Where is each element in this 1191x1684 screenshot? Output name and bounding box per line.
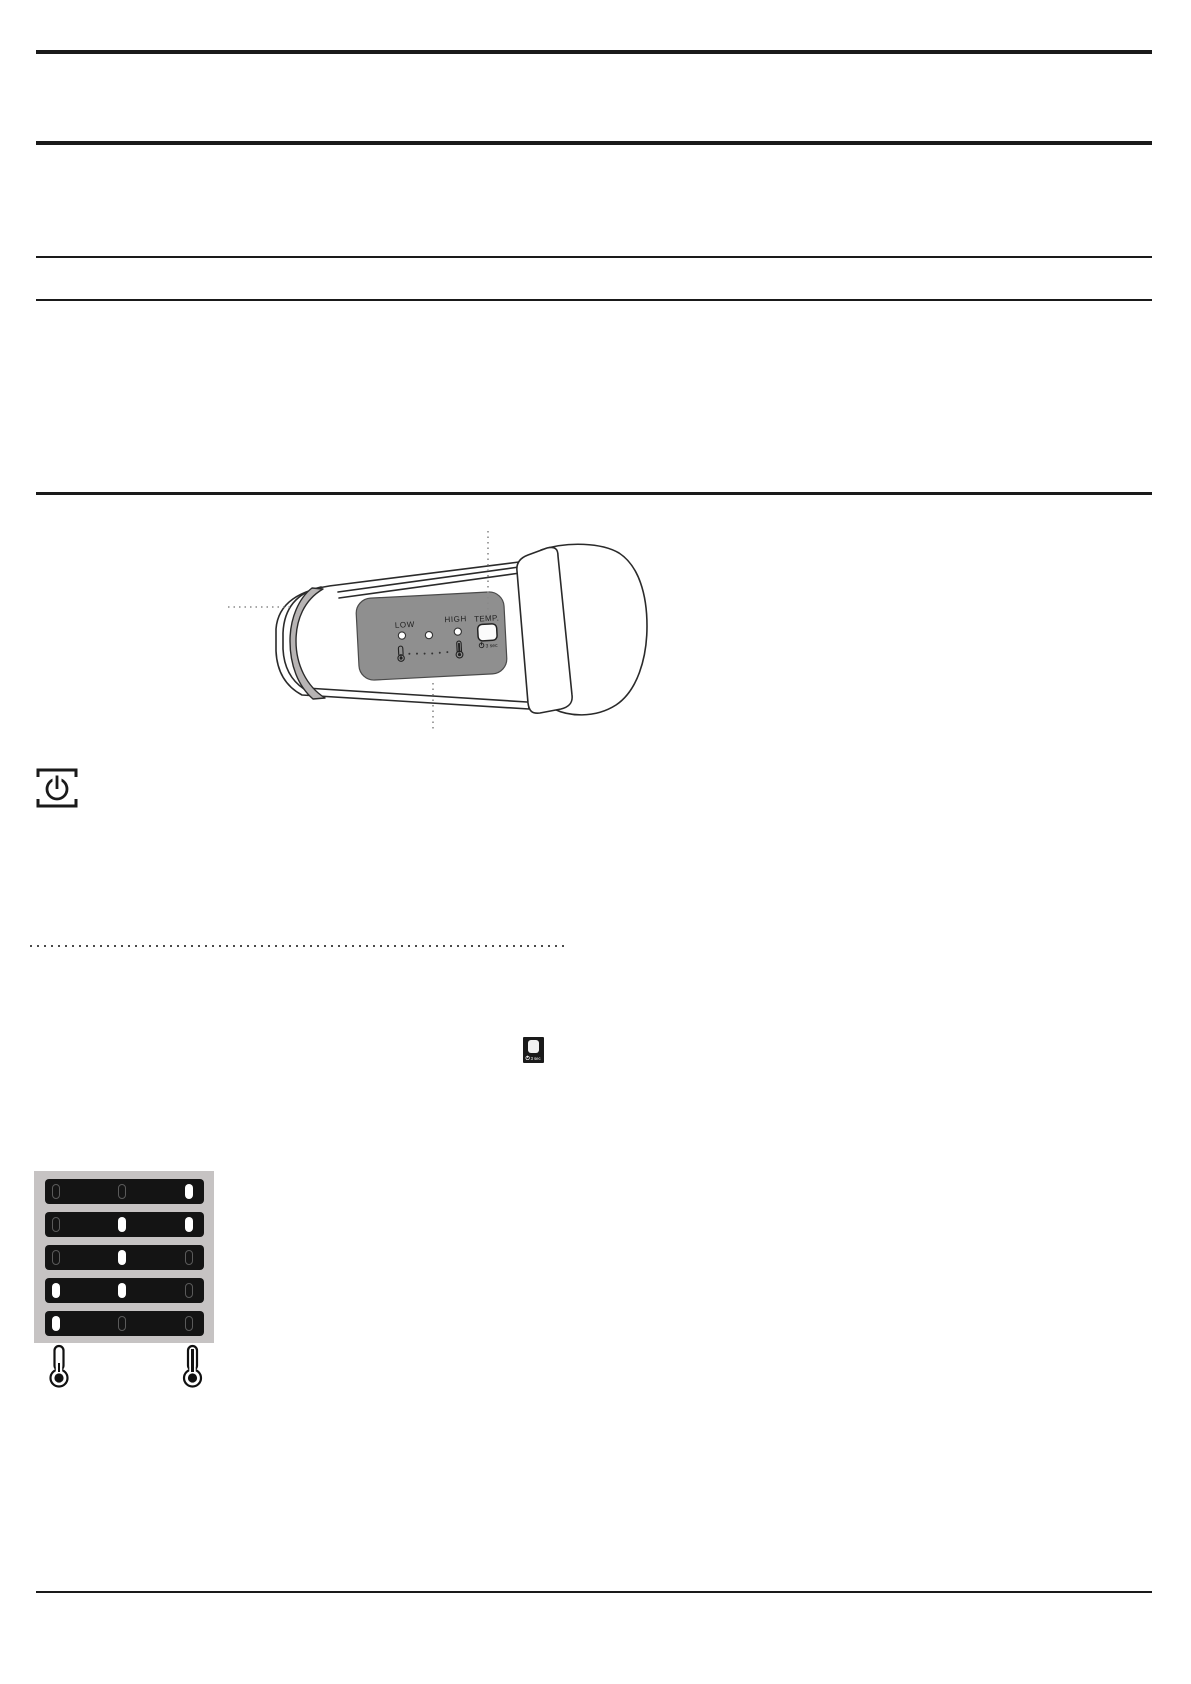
bottom-rule: [36, 1591, 1152, 1593]
low-led: [398, 632, 406, 640]
high-label: HIGH: [444, 614, 467, 624]
led-lit: [52, 1316, 60, 1331]
led-lit: [118, 1217, 126, 1232]
mid-led: [425, 631, 433, 639]
hold-hint-label: 3 sec: [485, 643, 498, 650]
led-lit: [185, 1217, 193, 1232]
thermometer-high-icon: [184, 1346, 201, 1387]
power-symbol-box: [36, 766, 78, 810]
top-rule-2: [36, 141, 1152, 145]
mini-button: [528, 1040, 539, 1053]
top-rule-1: [36, 50, 1152, 54]
high-led: [454, 628, 462, 636]
controller-figure: LOW HIGH TEMP.: [220, 483, 680, 733]
section-rule-1: [36, 256, 1152, 258]
low-label: LOW: [395, 620, 415, 630]
led-unlit: [118, 1316, 126, 1331]
led-unlit: [52, 1250, 60, 1265]
led-row: [45, 1245, 204, 1270]
control-panel: LOW HIGH TEMP.: [355, 591, 507, 681]
dotted-separator: [30, 945, 568, 947]
mini-hold-label: 3 sec: [531, 1056, 541, 1061]
led-unlit: [185, 1316, 193, 1331]
mini-temp-button-icon: 3 sec: [523, 1037, 544, 1063]
led-lit: [118, 1250, 126, 1265]
led-lit: [52, 1283, 60, 1298]
temp-label: TEMP.: [474, 613, 499, 623]
led-unlit: [185, 1250, 193, 1265]
temp-button[interactable]: [477, 624, 497, 641]
led-row: [45, 1179, 204, 1204]
led-row: [45, 1311, 204, 1336]
led-row: [45, 1212, 204, 1237]
power-icon: [47, 775, 67, 799]
led-row: [45, 1278, 204, 1303]
led-lit: [118, 1283, 126, 1298]
table-thermometers: [34, 1340, 214, 1396]
led-unlit: [52, 1217, 60, 1232]
led-unlit: [52, 1184, 60, 1199]
section-rule-2: [36, 299, 1152, 301]
led-unlit: [185, 1283, 193, 1298]
led-unlit: [118, 1184, 126, 1199]
led-lit: [185, 1184, 193, 1199]
led-level-table: [34, 1171, 214, 1343]
thermometer-low-icon: [51, 1346, 68, 1387]
manual-page: LOW HIGH TEMP.: [0, 0, 1191, 1684]
